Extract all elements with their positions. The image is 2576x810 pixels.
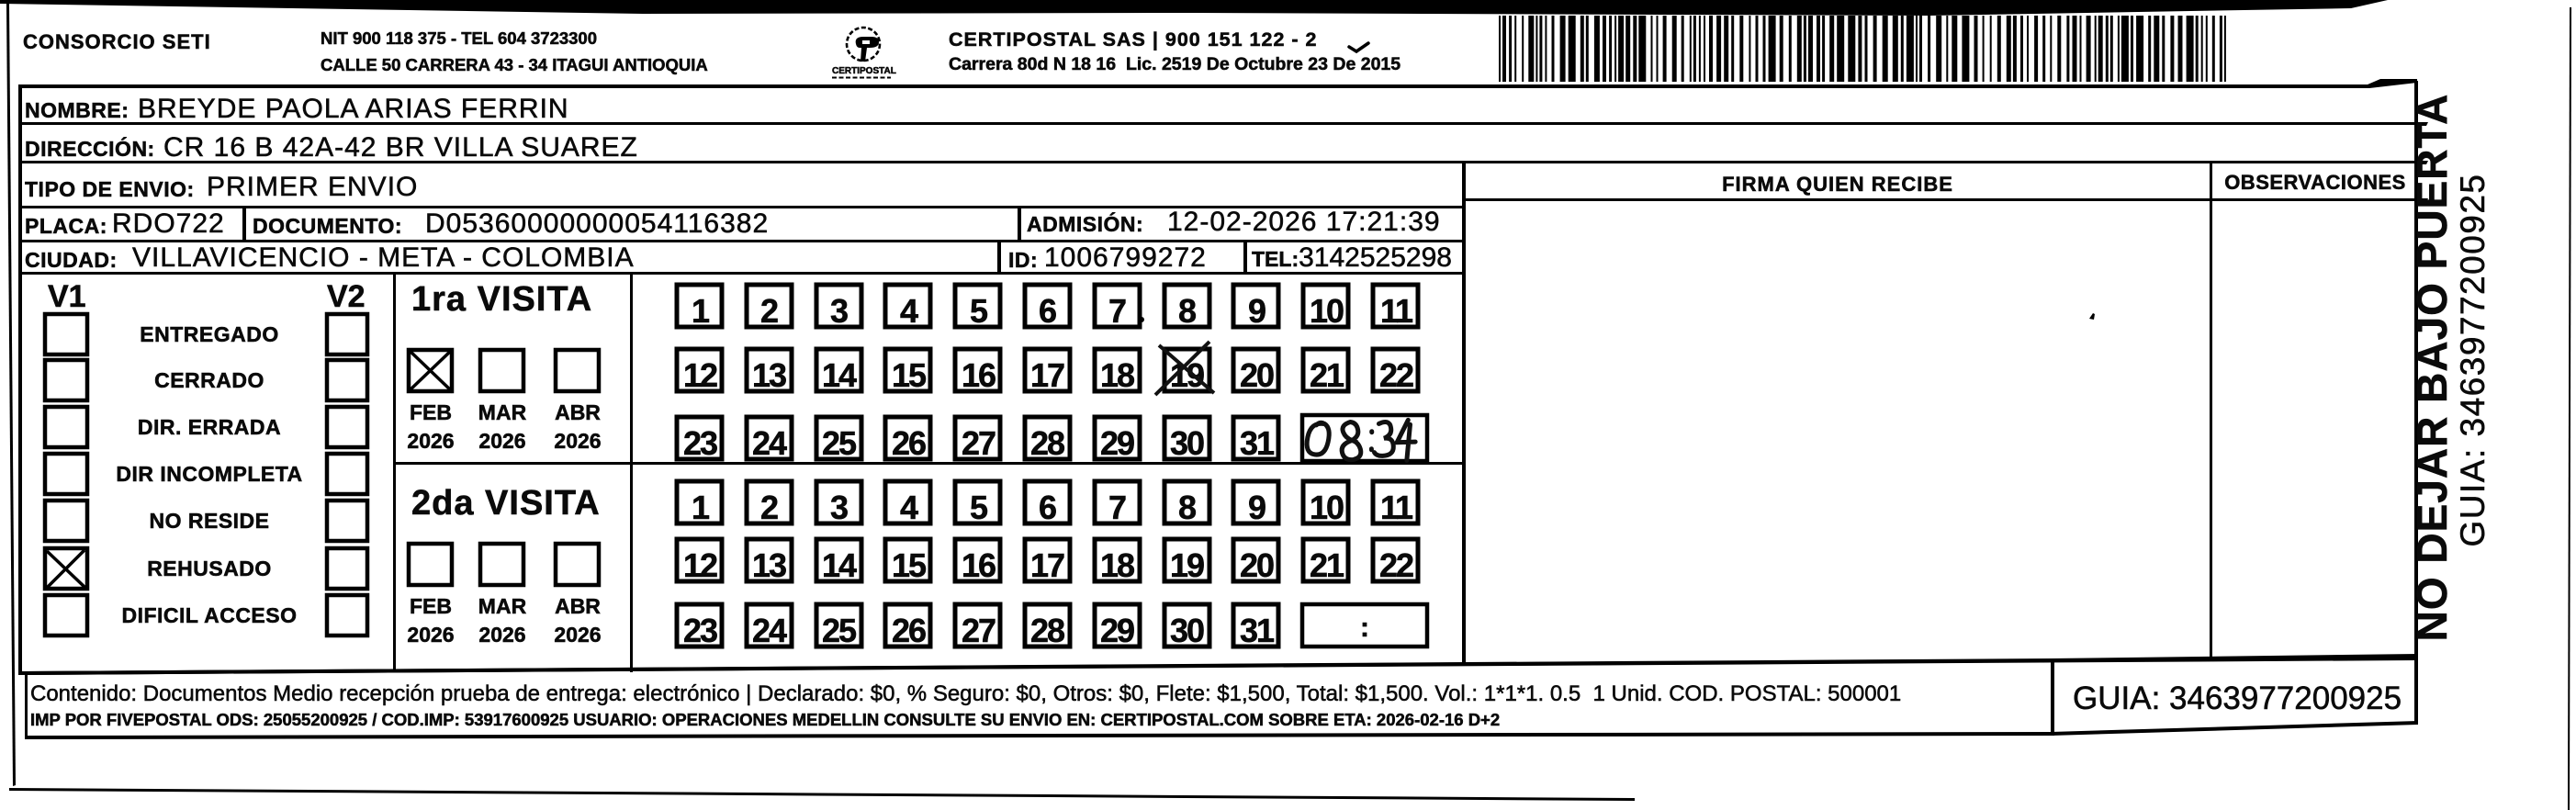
svg-text:27: 27: [962, 612, 996, 649]
svg-text:20: 20: [1240, 356, 1274, 394]
svg-text:IMP POR FIVEPOSTAL ODS: 250552: IMP POR FIVEPOSTAL ODS: 25055200925 / CO…: [30, 710, 1500, 729]
svg-text:7: 7: [1108, 292, 1126, 330]
svg-text:DOCUMENTO:: DOCUMENTO:: [253, 214, 402, 238]
svg-text:NIT 900 118 375 - TEL 604 3723: NIT 900 118 375 - TEL 604 3723300: [321, 28, 597, 48]
svg-text:FIRMA QUIEN RECIBE: FIRMA QUIEN RECIBE: [1722, 173, 1953, 196]
svg-text:ID:: ID:: [1008, 248, 1038, 272]
svg-text:11: 11: [1380, 489, 1413, 526]
svg-text:23: 23: [683, 612, 717, 649]
svg-text:14: 14: [822, 356, 857, 394]
svg-text:2026: 2026: [407, 623, 454, 647]
svg-text:6: 6: [1039, 292, 1056, 330]
svg-text:V1: V1: [48, 279, 86, 314]
svg-text:2026: 2026: [554, 429, 601, 453]
svg-text:2026: 2026: [407, 429, 454, 453]
svg-text:5: 5: [970, 292, 988, 330]
svg-text:NO RESIDE: NO RESIDE: [149, 509, 269, 533]
svg-text:29: 29: [1100, 612, 1134, 649]
svg-text:OBSERVACIONES: OBSERVACIONES: [2224, 171, 2406, 194]
svg-text:15: 15: [892, 356, 927, 394]
svg-text:12-02-2026 17:21:39: 12-02-2026 17:21:39: [1167, 207, 1441, 237]
svg-text:31: 31: [1240, 424, 1275, 462]
svg-text:9: 9: [1248, 292, 1266, 330]
svg-text:8: 8: [1178, 292, 1196, 330]
svg-text:19: 19: [1170, 546, 1204, 584]
svg-text:1: 1: [692, 489, 710, 526]
svg-text:24: 24: [752, 424, 787, 462]
svg-text:31: 31: [1240, 612, 1275, 649]
svg-text:2: 2: [760, 489, 778, 526]
svg-text:PRIMER ENVIO: PRIMER ENVIO: [207, 172, 418, 202]
svg-text:18: 18: [1100, 356, 1134, 394]
svg-text:21: 21: [1310, 546, 1344, 584]
svg-text:14: 14: [822, 546, 857, 584]
svg-text:1006799272: 1006799272: [1044, 242, 1207, 273]
svg-text:PLACA:: PLACA:: [25, 214, 107, 238]
svg-text:26: 26: [892, 612, 926, 649]
svg-text:22: 22: [1379, 356, 1413, 394]
svg-text:10: 10: [1310, 292, 1344, 330]
svg-text:17: 17: [1030, 356, 1064, 394]
svg-text:DIR INCOMPLETA: DIR INCOMPLETA: [116, 462, 302, 486]
svg-text:30: 30: [1170, 612, 1204, 649]
svg-text:17: 17: [1030, 546, 1064, 584]
svg-text:ADMISIÓN:: ADMISIÓN:: [1027, 211, 1143, 236]
svg-text:ABR: ABR: [555, 400, 601, 424]
svg-text:GUIA: 3463977200925: GUIA: 3463977200925: [2454, 173, 2492, 546]
svg-text:6: 6: [1039, 489, 1056, 526]
svg-text:RDO722: RDO722: [112, 208, 225, 239]
svg-text:1ra VISITA: 1ra VISITA: [411, 280, 592, 319]
svg-text:MAR: MAR: [478, 594, 527, 618]
svg-text:TIPO DE ENVIO:: TIPO DE ENVIO:: [25, 177, 195, 201]
svg-text:V2: V2: [327, 279, 366, 314]
svg-text:10: 10: [1310, 489, 1344, 526]
svg-text:CALLE 50 CARRERA 43 - 34 ITAGU: CALLE 50 CARRERA 43 - 34 ITAGUI ANTIOQUI…: [321, 55, 708, 74]
svg-text:CONSORCIO SETI: CONSORCIO SETI: [23, 30, 211, 53]
svg-text::: :: [1360, 613, 1369, 643]
svg-text:3: 3: [830, 489, 848, 526]
svg-text:21: 21: [1310, 356, 1344, 394]
svg-text:4: 4: [900, 489, 918, 526]
svg-text:30: 30: [1170, 424, 1204, 462]
svg-text:13: 13: [752, 356, 786, 394]
svg-text:CERTIPOSTAL: CERTIPOSTAL: [832, 66, 896, 76]
svg-text:2026: 2026: [478, 623, 525, 647]
svg-text:29: 29: [1100, 424, 1134, 462]
svg-text:24: 24: [752, 612, 787, 649]
svg-text:11: 11: [1380, 292, 1413, 330]
svg-text:VILLAVICENCIO - META - COLOMBI: VILLAVICENCIO - META - COLOMBIA: [132, 242, 635, 273]
svg-text:DIR. ERRADA: DIR. ERRADA: [138, 415, 281, 439]
svg-text:REHUSADO: REHUSADO: [147, 557, 272, 580]
svg-text:4: 4: [900, 292, 918, 330]
svg-text:DIFICIL ACCESO: DIFICIL ACCESO: [121, 603, 297, 627]
svg-text:DIRECCIÓN:: DIRECCIÓN:: [25, 136, 155, 161]
svg-text:16: 16: [962, 356, 996, 394]
svg-text:26: 26: [892, 424, 926, 462]
svg-text:28: 28: [1030, 612, 1064, 649]
svg-text:12: 12: [683, 546, 717, 584]
svg-text:BREYDE PAOLA ARIAS FERRIN: BREYDE PAOLA ARIAS FERRIN: [138, 94, 569, 124]
svg-text:1: 1: [692, 292, 710, 330]
svg-text:NOMBRE:: NOMBRE:: [25, 98, 129, 122]
svg-text:2026: 2026: [478, 429, 525, 453]
svg-text:12: 12: [683, 356, 717, 394]
svg-text:13: 13: [752, 546, 786, 584]
svg-text:NO DEJAR BAJO PUERTA: NO DEJAR BAJO PUERTA: [2408, 94, 2456, 642]
svg-text:15: 15: [892, 546, 927, 584]
svg-text:2026: 2026: [554, 623, 601, 647]
svg-text:8: 8: [1178, 489, 1196, 526]
svg-text:D05360000000054116382: D05360000000054116382: [425, 208, 769, 239]
svg-text:MAR: MAR: [478, 400, 527, 424]
svg-text:9: 9: [1248, 489, 1266, 526]
svg-text:TEL:3142525298: TEL:3142525298: [1252, 242, 1452, 273]
svg-text:Contenido: Documentos Medio re: Contenido: Documentos Medio recepción pr…: [30, 681, 1901, 706]
svg-text:25: 25: [822, 424, 857, 462]
svg-text:3: 3: [830, 292, 848, 330]
svg-text:28: 28: [1030, 424, 1064, 462]
svg-text:16: 16: [962, 546, 996, 584]
svg-text:5: 5: [970, 489, 988, 526]
svg-text:CIUDAD:: CIUDAD:: [25, 248, 118, 272]
svg-text:ENTREGADO: ENTREGADO: [140, 322, 278, 346]
svg-text:18: 18: [1100, 546, 1134, 584]
svg-text:CERRADO: CERRADO: [154, 368, 264, 392]
svg-text:GUIA: 3463977200925: GUIA: 3463977200925: [2073, 681, 2402, 716]
svg-text:2: 2: [760, 292, 778, 330]
svg-text:27: 27: [962, 424, 996, 462]
svg-text:Carrera 80d N 18 16 Lic. 2519: Carrera 80d N 18 16 Lic. 2519 De Octubre…: [949, 54, 1400, 74]
svg-text:CERTIPOSTAL SAS | 900 151 122: CERTIPOSTAL SAS | 900 151 122 - 2: [949, 28, 1317, 51]
svg-text:CR 16 B 42A-42 BR VILLA SUAREZ: CR 16 B 42A-42 BR VILLA SUAREZ: [163, 132, 638, 163]
svg-text:22: 22: [1379, 546, 1413, 584]
svg-text:FEB: FEB: [410, 400, 452, 424]
svg-text:25: 25: [822, 612, 857, 649]
svg-text:23: 23: [683, 424, 717, 462]
svg-text:2da VISITA: 2da VISITA: [411, 484, 601, 523]
svg-text:7: 7: [1108, 489, 1126, 526]
svg-text:20: 20: [1240, 546, 1274, 584]
svg-text:FEB: FEB: [410, 594, 452, 618]
svg-text:ABR: ABR: [555, 594, 601, 618]
